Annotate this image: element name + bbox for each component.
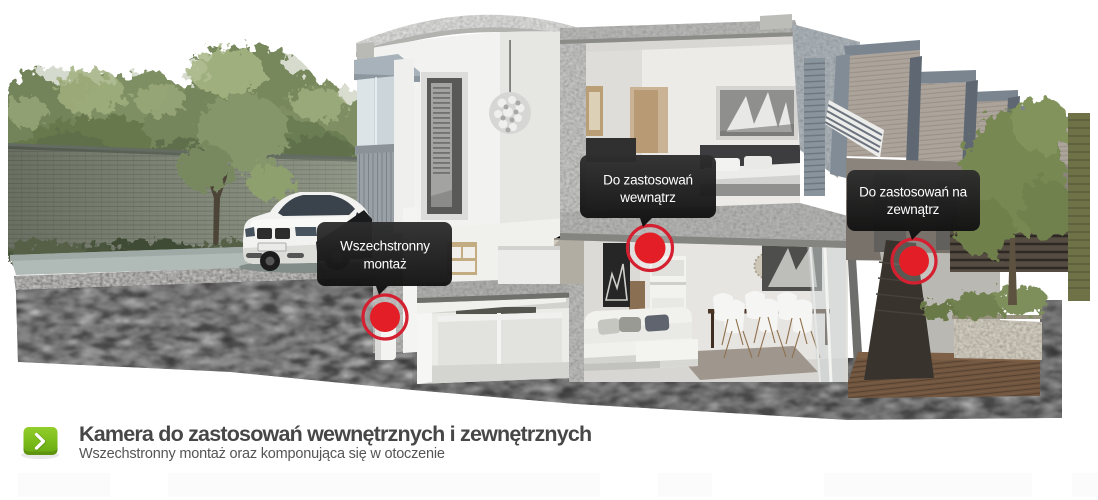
svg-text:wewnątrz: wewnątrz [619,190,676,205]
svg-text:Do zastosowań na: Do zastosowań na [859,185,968,200]
svg-text:zewnątrz: zewnątrz [887,202,940,217]
svg-text:montaż: montaż [363,257,407,272]
svg-text:Wszechstronny: Wszechstronny [340,239,430,254]
svg-text:Do zastosowań: Do zastosowań [603,173,693,188]
